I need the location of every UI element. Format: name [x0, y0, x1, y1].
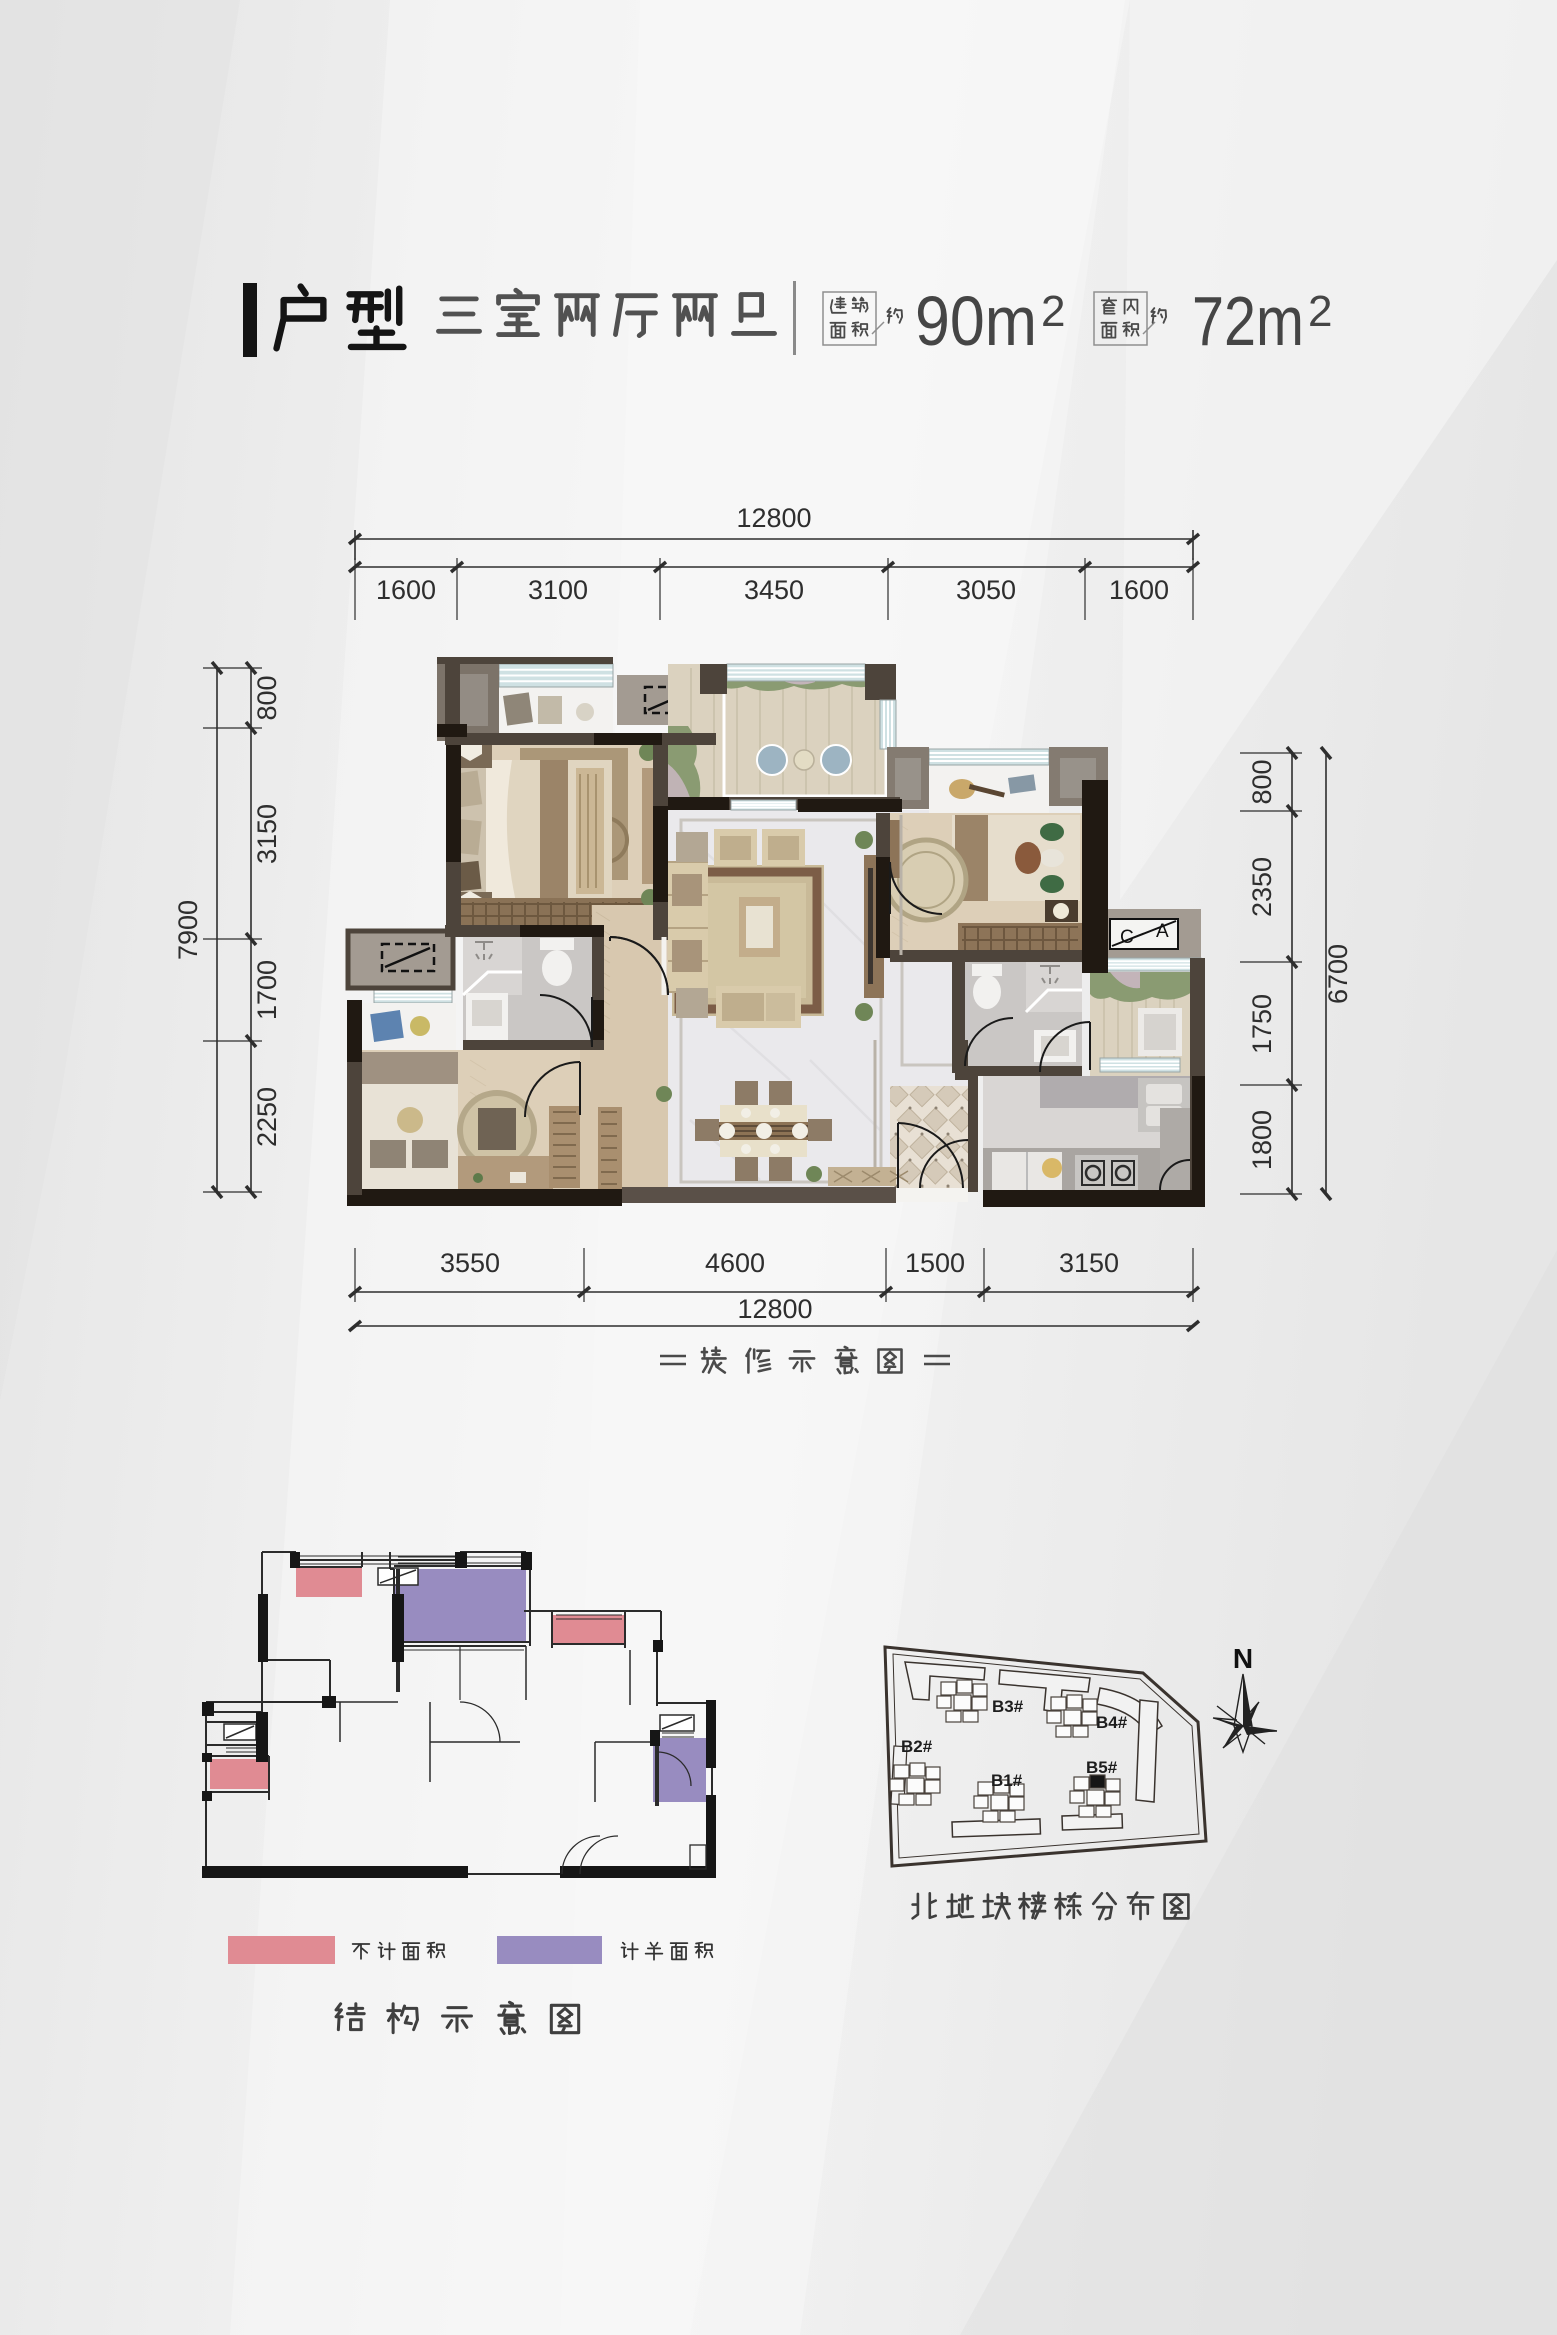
- svg-text:B4#: B4#: [1096, 1713, 1128, 1732]
- svg-text:3550: 3550: [440, 1248, 500, 1278]
- svg-text:B5#: B5#: [1086, 1758, 1118, 1777]
- svg-text:90m: 90m: [915, 282, 1037, 360]
- svg-text:12800: 12800: [736, 503, 811, 533]
- svg-text:B3#: B3#: [992, 1697, 1024, 1716]
- svg-text:1600: 1600: [376, 575, 436, 605]
- svg-text:1700: 1700: [252, 960, 282, 1020]
- svg-text:N: N: [1233, 1643, 1253, 1674]
- svg-text:C: C: [1120, 927, 1134, 948]
- svg-text:800: 800: [252, 675, 282, 720]
- svg-text:4600: 4600: [705, 1248, 765, 1278]
- svg-text:1800: 1800: [1247, 1110, 1277, 1170]
- svg-text:3150: 3150: [252, 804, 282, 864]
- svg-text:A: A: [1156, 921, 1169, 942]
- svg-text:3150: 3150: [1059, 1248, 1119, 1278]
- svg-text:B1#: B1#: [991, 1771, 1023, 1790]
- svg-text:2350: 2350: [1247, 857, 1277, 917]
- svg-text:1750: 1750: [1247, 994, 1277, 1054]
- svg-text:2: 2: [1041, 287, 1065, 336]
- svg-text:3450: 3450: [744, 575, 804, 605]
- svg-text:B2#: B2#: [901, 1737, 933, 1756]
- svg-text:2: 2: [1308, 287, 1332, 336]
- svg-text:1600: 1600: [1109, 575, 1169, 605]
- svg-text:7900: 7900: [173, 900, 203, 960]
- svg-text:6700: 6700: [1323, 944, 1353, 1004]
- svg-text:1500: 1500: [905, 1248, 965, 1278]
- svg-text:2250: 2250: [252, 1087, 282, 1147]
- svg-text:3050: 3050: [956, 575, 1016, 605]
- svg-text:12800: 12800: [737, 1294, 812, 1324]
- svg-text:72m: 72m: [1192, 282, 1304, 360]
- svg-text:3100: 3100: [528, 575, 588, 605]
- svg-text:800: 800: [1247, 759, 1277, 804]
